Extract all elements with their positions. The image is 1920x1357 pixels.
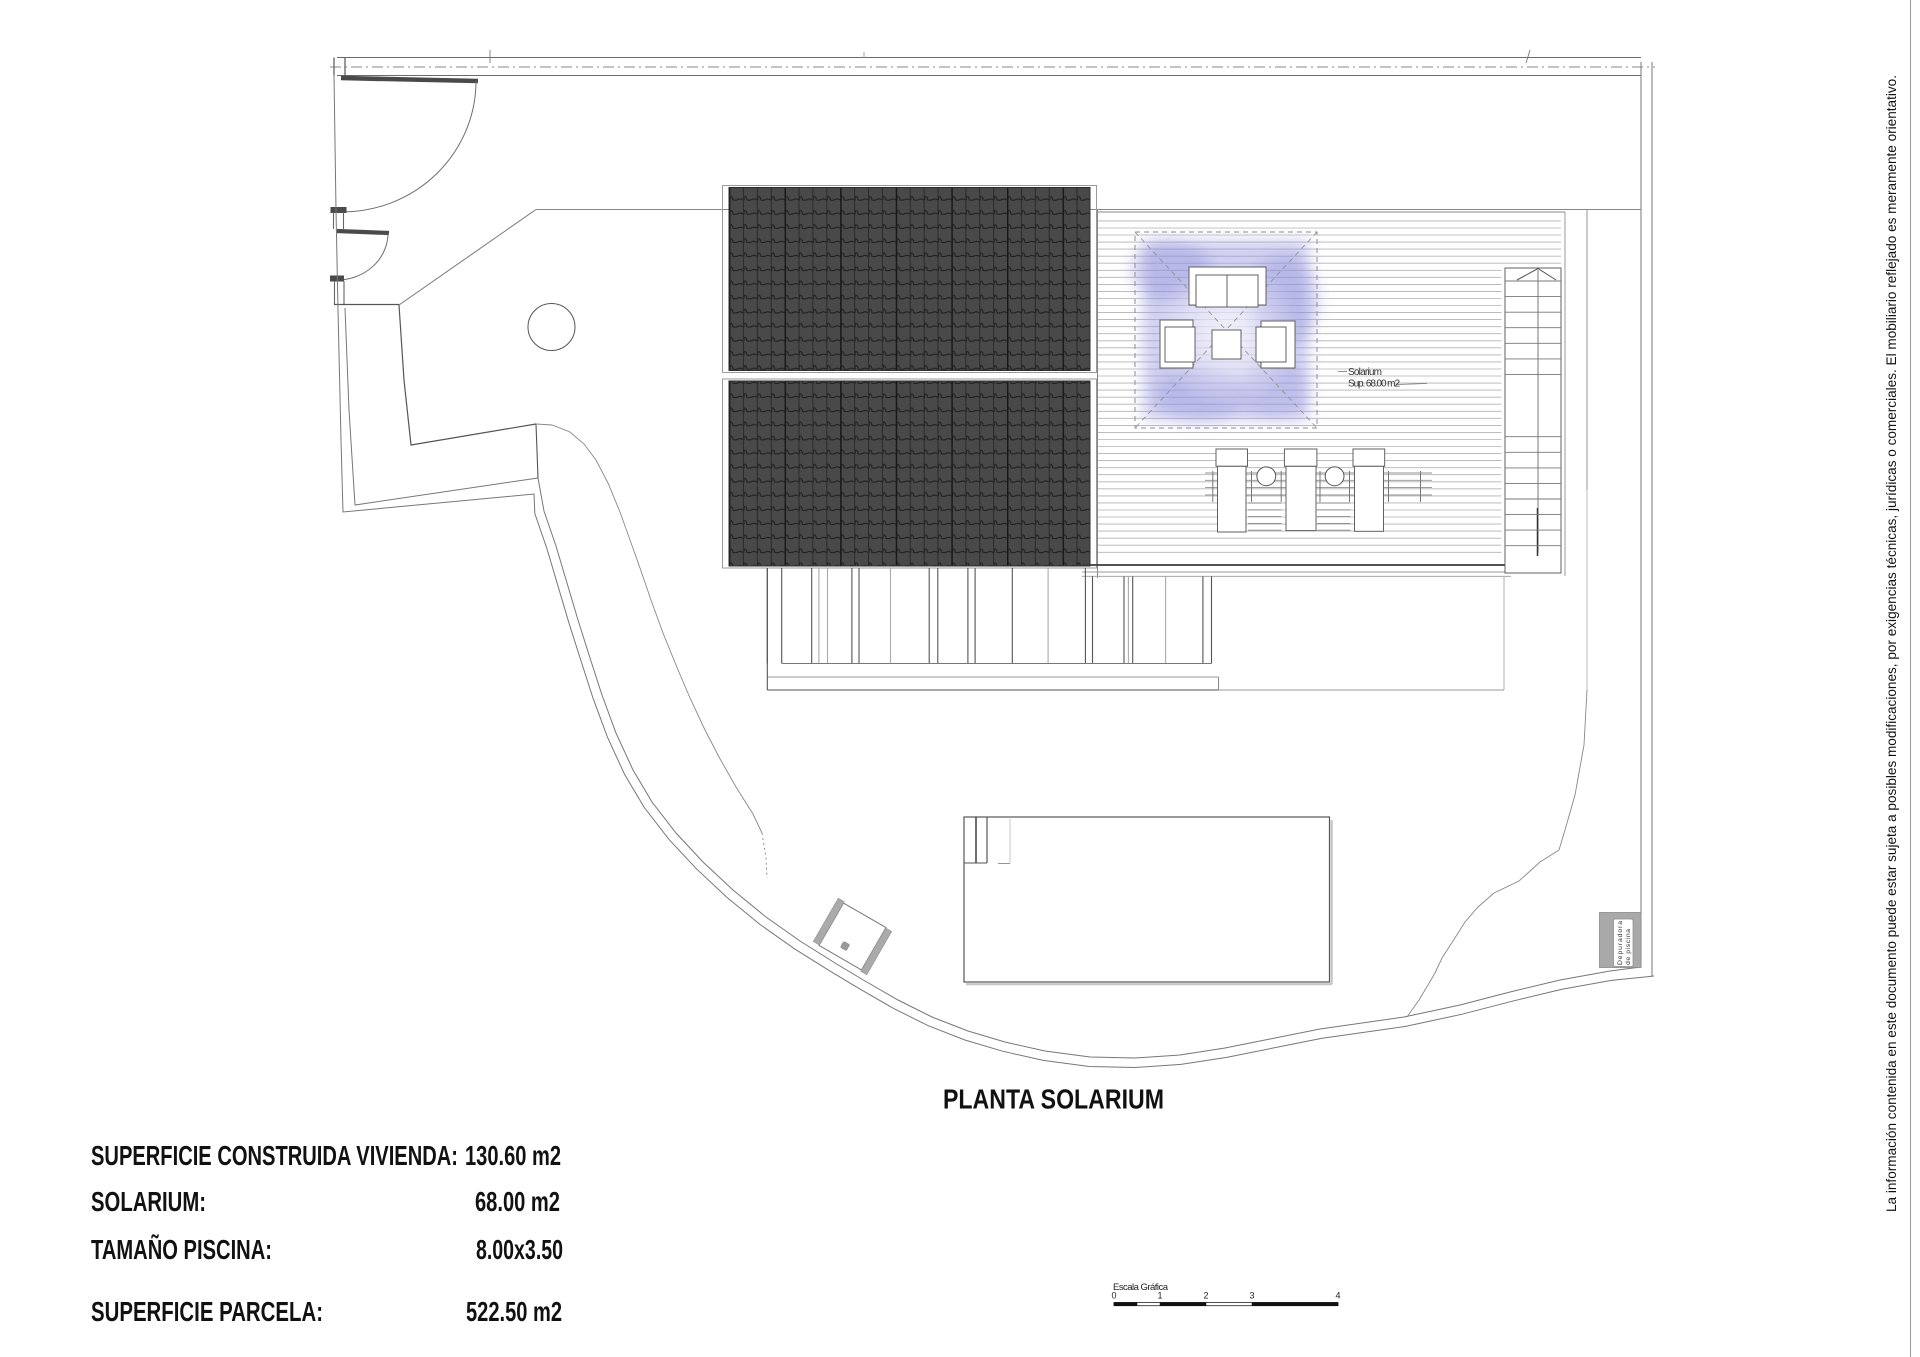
svg-text:SUPERFICIE PARCELA:: SUPERFICIE PARCELA: bbox=[91, 1296, 323, 1327]
svg-text:8.00x3.50: 8.00x3.50 bbox=[476, 1234, 563, 1265]
svg-text:1: 1 bbox=[1157, 1291, 1162, 1301]
svg-text:de piscina: de piscina bbox=[1625, 929, 1632, 965]
svg-text:SUPERFICIE CONSTRUIDA VIVIENDA: SUPERFICIE CONSTRUIDA VIVIENDA: bbox=[91, 1140, 458, 1171]
svg-text:La información contenida en es: La información contenida en este documen… bbox=[1884, 75, 1899, 1212]
svg-text:PLANTA SOLARIUM: PLANTA SOLARIUM bbox=[943, 1084, 1164, 1115]
svg-text:TAMAÑO PISCINA:: TAMAÑO PISCINA: bbox=[91, 1234, 272, 1265]
svg-text:3: 3 bbox=[1249, 1291, 1254, 1301]
svg-text:0: 0 bbox=[1111, 1291, 1116, 1301]
svg-text:68.00 m2: 68.00 m2 bbox=[475, 1186, 560, 1217]
svg-text:4: 4 bbox=[1335, 1291, 1340, 1301]
svg-text:Sup. 68.00 m2: Sup. 68.00 m2 bbox=[1348, 379, 1400, 390]
svg-text:Solarium: Solarium bbox=[1348, 367, 1382, 378]
svg-text:2: 2 bbox=[1203, 1291, 1208, 1301]
svg-text:522.50 m2: 522.50 m2 bbox=[466, 1296, 562, 1327]
svg-text:SOLARIUM:: SOLARIUM: bbox=[91, 1186, 206, 1217]
svg-text:130.60 m2: 130.60 m2 bbox=[465, 1140, 561, 1171]
svg-text:Depuradora: Depuradora bbox=[1617, 921, 1624, 965]
